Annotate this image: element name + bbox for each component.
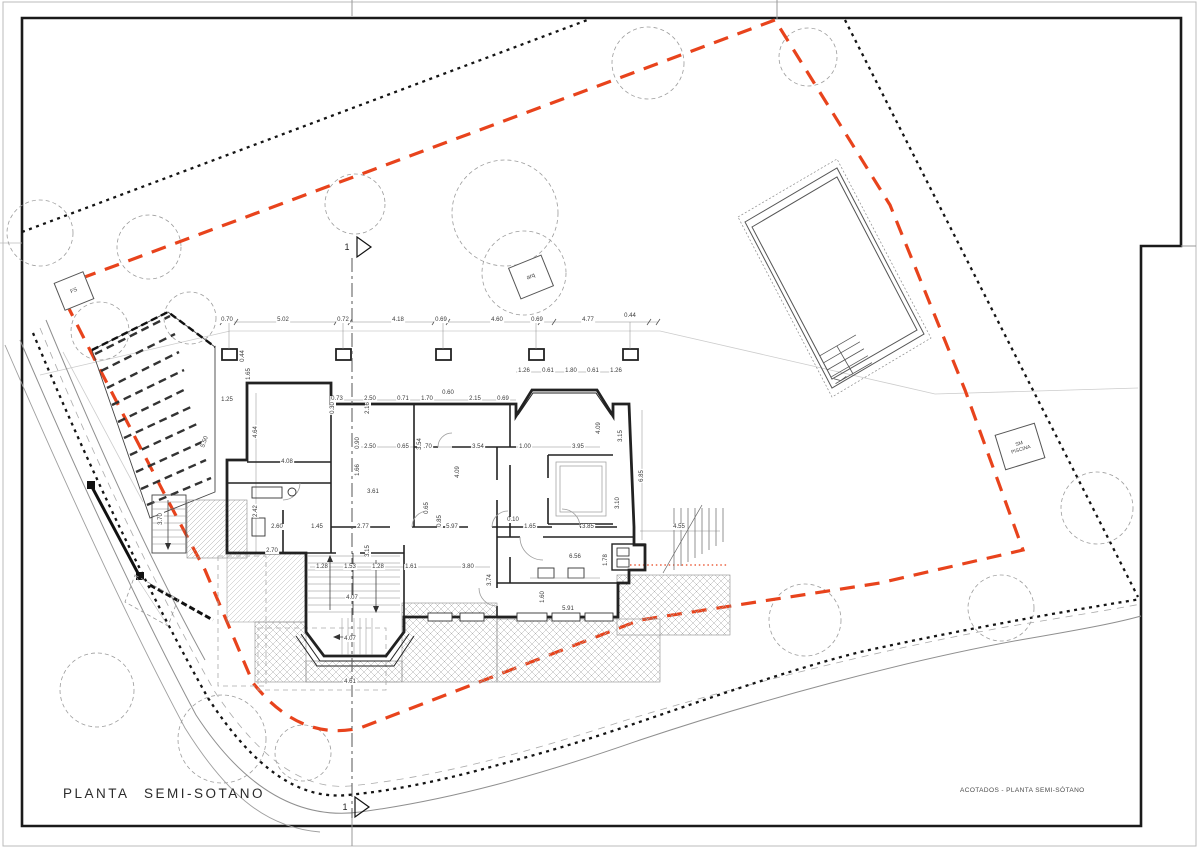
garden-steps xyxy=(663,505,723,573)
section-marker-triangle-top xyxy=(357,237,371,257)
plan-caption: ACOTADOS - PLANTA SEMI-SÓTANO xyxy=(960,787,1085,794)
fs-label-text: FS xyxy=(70,287,79,295)
border-frame xyxy=(0,0,1196,846)
kitchen-fixtures xyxy=(530,568,600,578)
pool xyxy=(738,159,931,397)
drawing-sheet: 0.705.020.724.180.694.600.694.770.440.44… xyxy=(0,0,1200,849)
road-edges xyxy=(5,320,1141,832)
pool-label-line2: PISCINA xyxy=(1010,444,1031,456)
pool-steps xyxy=(820,335,872,384)
section-marker-triangle-bottom xyxy=(355,797,369,817)
plan-title: PLANTA SEMI-SOTANO xyxy=(63,786,265,801)
section-number-bottom: 1 xyxy=(342,802,347,812)
pillars xyxy=(222,349,638,360)
section-number-top: 1 xyxy=(344,242,349,252)
bathroom-fixtures xyxy=(252,487,296,536)
fireplace xyxy=(612,544,645,570)
door-arcs xyxy=(283,433,580,606)
site-plan-drawing xyxy=(0,0,1200,849)
storage-inner xyxy=(556,462,606,516)
arq-label-text: arq xyxy=(526,273,536,282)
